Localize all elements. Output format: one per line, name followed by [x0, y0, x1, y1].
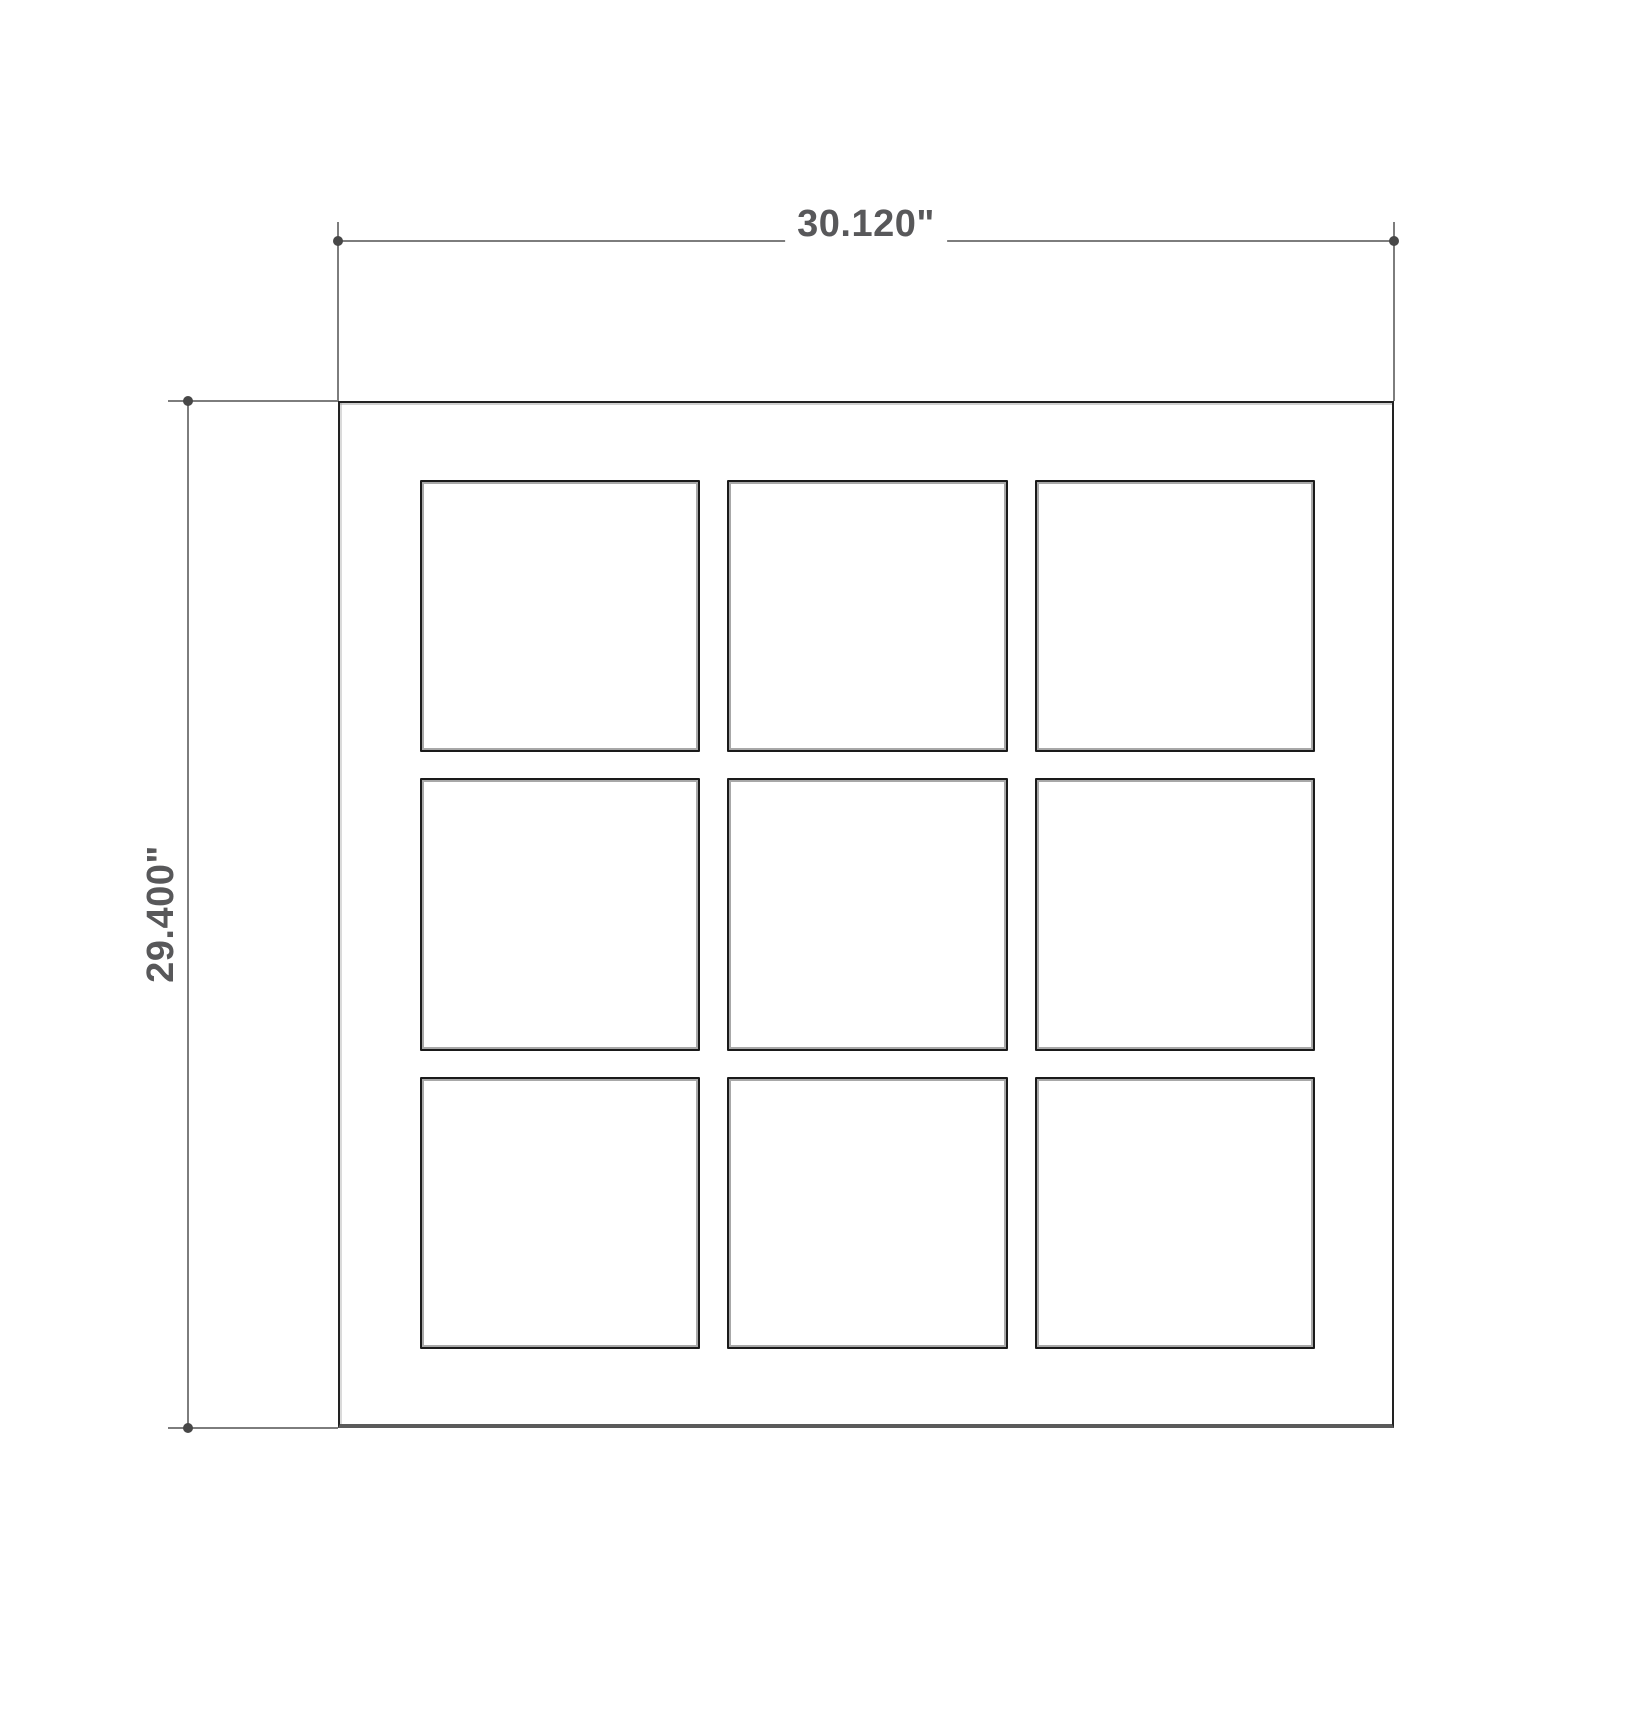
- pane: [727, 480, 1007, 752]
- pane: [1035, 480, 1315, 752]
- pane: [420, 480, 700, 752]
- width-extension-line-left: [337, 222, 339, 401]
- height-dimension-endpoint-bottom: [183, 1423, 193, 1433]
- height-extension-line-top: [168, 400, 338, 402]
- pane: [1035, 778, 1315, 1050]
- height-dimension-line: [187, 401, 189, 1428]
- pane: [420, 778, 700, 1050]
- width-dimension-label: 30.120": [785, 202, 947, 246]
- pane: [727, 778, 1007, 1050]
- height-dimension-label: 29.400": [139, 845, 183, 983]
- pane: [1035, 1077, 1315, 1349]
- drawing-canvas: 30.120" 29.400": [0, 0, 1648, 1720]
- width-dimension-endpoint-right: [1389, 236, 1399, 246]
- height-dimension-endpoint-top: [183, 396, 193, 406]
- pane: [420, 1077, 700, 1349]
- pane-grid: [420, 480, 1315, 1349]
- panel-outline: [338, 401, 1394, 1428]
- width-extension-line-right: [1393, 222, 1395, 401]
- pane: [727, 1077, 1007, 1349]
- width-dimension-endpoint-left: [333, 236, 343, 246]
- height-extension-line-bottom: [168, 1427, 338, 1429]
